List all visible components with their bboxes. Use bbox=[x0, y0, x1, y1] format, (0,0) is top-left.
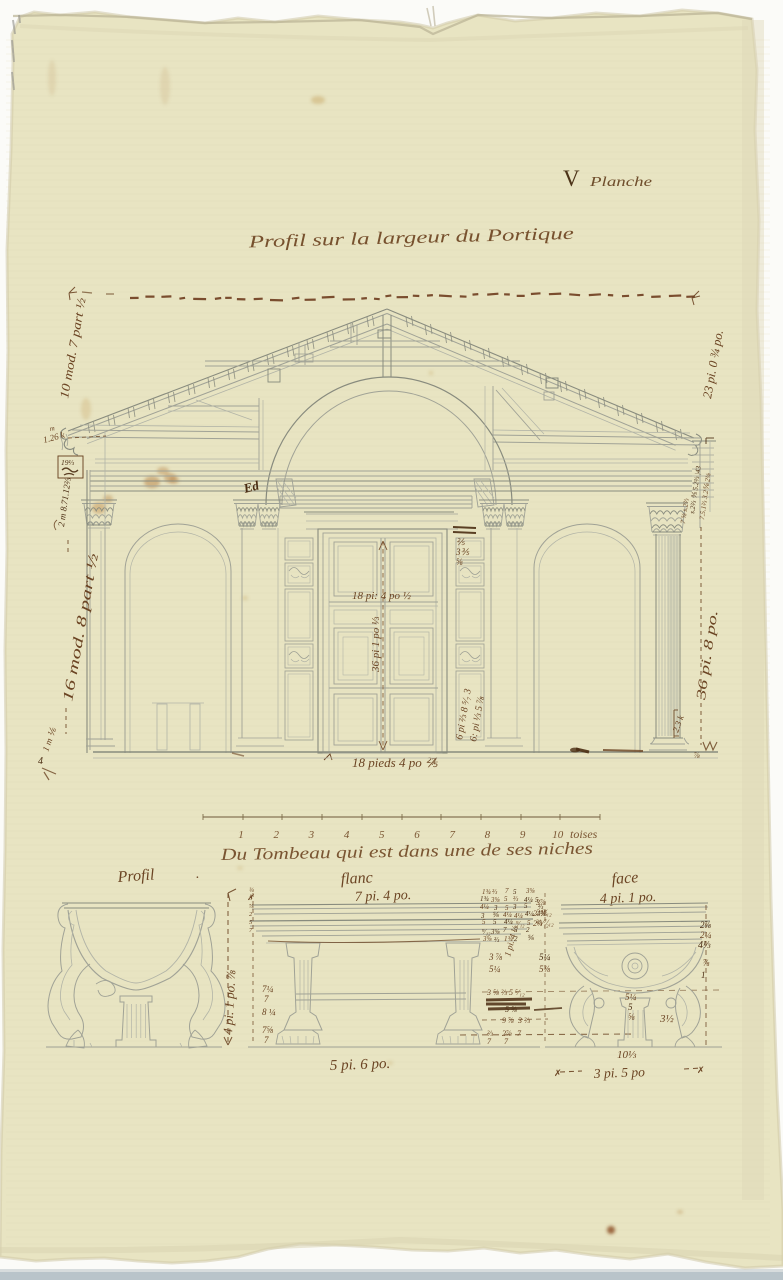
svg-text:⅝: ⅝ bbox=[456, 557, 463, 567]
svg-text:⅞: ⅞ bbox=[694, 751, 700, 760]
svg-text:3 ⅔: 3 ⅔ bbox=[517, 1016, 530, 1025]
svg-text:5: 5 bbox=[504, 895, 508, 903]
svg-text:3½: 3½ bbox=[659, 1013, 674, 1025]
svg-text:3 pi. 5 po: 3 pi. 5 po bbox=[593, 1064, 646, 1081]
svg-text:9 ⅞: 9 ⅞ bbox=[502, 1016, 514, 1025]
svg-text:1¾: 1¾ bbox=[480, 895, 490, 903]
svg-text:3 ⅝ ⅔ 5 ⁵⁄₁₂: 3 ⅝ ⅔ 5 ⁵⁄₁₂ bbox=[486, 988, 525, 997]
svg-text:3: 3 bbox=[512, 903, 517, 911]
svg-text:7: 7 bbox=[264, 1035, 269, 1045]
svg-text:7: 7 bbox=[264, 994, 269, 1004]
svg-text:2⅞: 2⅞ bbox=[700, 920, 712, 930]
svg-text:36 pi 1 po ⅓: 36 pi 1 po ⅓ bbox=[370, 616, 382, 673]
svg-text:18 pi: 4 po ½: 18 pi: 4 po ½ bbox=[352, 590, 411, 602]
svg-text:2: 2 bbox=[273, 829, 279, 841]
svg-text:4¼: 4¼ bbox=[480, 903, 490, 911]
svg-text:5: 5 bbox=[628, 1002, 633, 1012]
svg-text:¾: ¾ bbox=[249, 887, 254, 894]
svg-text:8: 8 bbox=[485, 829, 491, 841]
svg-text:5: 5 bbox=[482, 918, 486, 926]
svg-text:8 ¼: 8 ¼ bbox=[262, 1007, 276, 1017]
svg-text:⅔: ⅔ bbox=[492, 888, 498, 896]
svg-text:7: 7 bbox=[505, 887, 509, 895]
svg-text:V: V bbox=[563, 166, 580, 191]
svg-text:5: 5 bbox=[379, 829, 385, 841]
svg-text:3⅞: 3⅞ bbox=[535, 898, 546, 907]
svg-text:.: . bbox=[196, 867, 200, 882]
svg-text:⅔: ⅔ bbox=[513, 895, 519, 903]
svg-text:18 pieds 4 po ⅖: 18 pieds 4 po ⅖ bbox=[352, 755, 438, 770]
svg-text:⅞: ⅞ bbox=[703, 958, 710, 968]
svg-text:5¼: 5¼ bbox=[625, 992, 637, 1002]
svg-text:5¼: 5¼ bbox=[489, 964, 501, 974]
svg-text:flanc: flanc bbox=[340, 869, 373, 888]
svg-text:5: 5 bbox=[493, 918, 497, 926]
svg-text:7: 7 bbox=[503, 926, 507, 934]
svg-text:3⅝: 3⅝ bbox=[525, 887, 536, 895]
svg-text:7 pi. 4 po.: 7 pi. 4 po. bbox=[355, 888, 412, 905]
svg-text:✗: ✗ bbox=[697, 1065, 705, 1075]
svg-text:face: face bbox=[611, 869, 639, 888]
svg-text:Profil: Profil bbox=[116, 866, 155, 886]
svg-text:7: 7 bbox=[449, 829, 455, 841]
svg-text:3 ⅞: 3 ⅞ bbox=[488, 952, 503, 962]
svg-text:⅝: ⅝ bbox=[628, 1012, 635, 1022]
svg-text:10⅓: 10⅓ bbox=[617, 1049, 637, 1061]
svg-text:Planche: Planche bbox=[589, 174, 652, 189]
svg-text:✗: ✗ bbox=[554, 1068, 562, 1078]
svg-text:4¼: 4¼ bbox=[514, 912, 524, 920]
svg-text:1: 1 bbox=[701, 970, 706, 980]
svg-text:2¼: 2¼ bbox=[700, 930, 712, 940]
svg-text:2: 2 bbox=[526, 926, 530, 934]
svg-text:3⅗: 3⅗ bbox=[455, 547, 470, 557]
svg-text:7⅝: 7⅝ bbox=[262, 1025, 274, 1035]
svg-text:4: 4 bbox=[344, 829, 350, 841]
svg-text:⅞: ⅞ bbox=[249, 903, 254, 910]
svg-text:6: 6 bbox=[414, 829, 420, 841]
svg-text:5: 5 bbox=[524, 902, 528, 910]
svg-text:5 pi. 6 po.: 5 pi. 6 po. bbox=[330, 1056, 391, 1074]
svg-text:2 ⁹⁄₁₂: 2 ⁹⁄₁₂ bbox=[536, 908, 552, 917]
svg-text:3⅝: 3⅝ bbox=[482, 935, 493, 943]
svg-text:3: 3 bbox=[308, 829, 315, 841]
svg-text:1: 1 bbox=[238, 829, 244, 841]
svg-text:4: 4 bbox=[38, 756, 43, 767]
svg-text:5 ⅝: 5 ⅝ bbox=[505, 1005, 517, 1014]
svg-text:4⅓: 4⅓ bbox=[698, 940, 711, 951]
svg-text:3⅝: 3⅝ bbox=[490, 896, 501, 904]
svg-text:7¼: 7¼ bbox=[262, 984, 274, 994]
svg-text:⅔: ⅔ bbox=[494, 936, 500, 944]
svg-text:19⅓: 19⅓ bbox=[61, 458, 75, 467]
svg-text:⅖: ⅖ bbox=[456, 537, 465, 547]
